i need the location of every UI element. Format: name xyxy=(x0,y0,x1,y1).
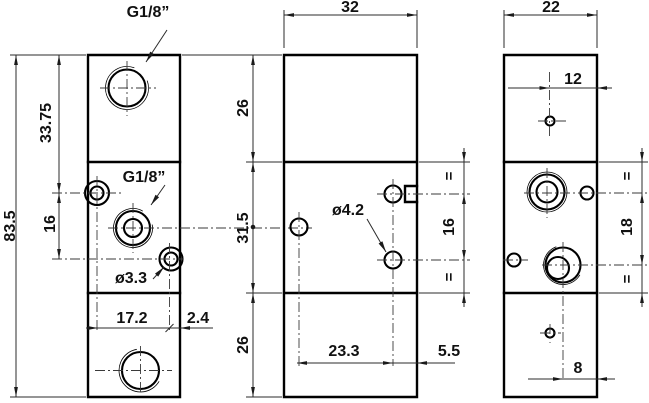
dim-23-3: 23.3 xyxy=(328,343,359,360)
label-dia-4-2: ø4.2 xyxy=(332,202,364,219)
dim-8: 8 xyxy=(574,360,583,377)
dim-top-to-port: 33.75 xyxy=(38,103,55,143)
eq-mark-back-top: = xyxy=(619,171,636,180)
dim-side-width: 32 xyxy=(341,0,359,16)
dim-12: 12 xyxy=(564,71,582,88)
eq-mark-side-bottom: = xyxy=(441,272,458,281)
dim-side-top-section: 26 xyxy=(235,99,252,117)
dim-front-hole-spacing: 16 xyxy=(42,215,59,233)
front-view-holes xyxy=(85,67,183,392)
dim-back-width: 22 xyxy=(542,0,560,16)
eq-mark-back-bottom: = xyxy=(619,274,636,283)
back-view-dimension-lines xyxy=(504,10,648,379)
dim-side-mid-section: 31.5 xyxy=(235,212,252,243)
front-view-outline xyxy=(88,55,180,397)
dim-side-bottom-section: 26 xyxy=(235,336,252,354)
side-view-holes xyxy=(291,186,402,269)
dim-back-hole-spacing: 18 xyxy=(619,218,636,236)
side-view-centerlines xyxy=(299,179,470,366)
front-view-centerlines xyxy=(52,61,312,395)
dim-2-4: 2.4 xyxy=(187,310,209,327)
front-view-labels: G1/8” G1/8” ø3.3 83.5 33.75 16 17.2 2.4 xyxy=(2,4,209,327)
dim-17-2: 17.2 xyxy=(116,310,147,327)
dim-total-height: 83.5 xyxy=(2,210,19,241)
drawing-sheet: G1/8” G1/8” ø3.3 83.5 33.75 16 17.2 2.4 … xyxy=(0,0,649,403)
label-dia-3-3: ø3.3 xyxy=(115,270,147,287)
technical-drawing-svg: G1/8” G1/8” ø3.3 83.5 33.75 16 17.2 2.4 … xyxy=(0,0,649,403)
dim-side-hole-spacing: 16 xyxy=(441,218,458,236)
back-view-holes xyxy=(508,117,594,338)
eq-mark-side-top: = xyxy=(441,171,458,180)
back-view-outline xyxy=(504,55,597,397)
dim-5-5: 5.5 xyxy=(438,343,460,360)
label-port-top: G1/8” xyxy=(127,4,170,21)
label-port-mid: G1/8” xyxy=(123,169,166,186)
back-view-arrowheads xyxy=(504,13,644,381)
